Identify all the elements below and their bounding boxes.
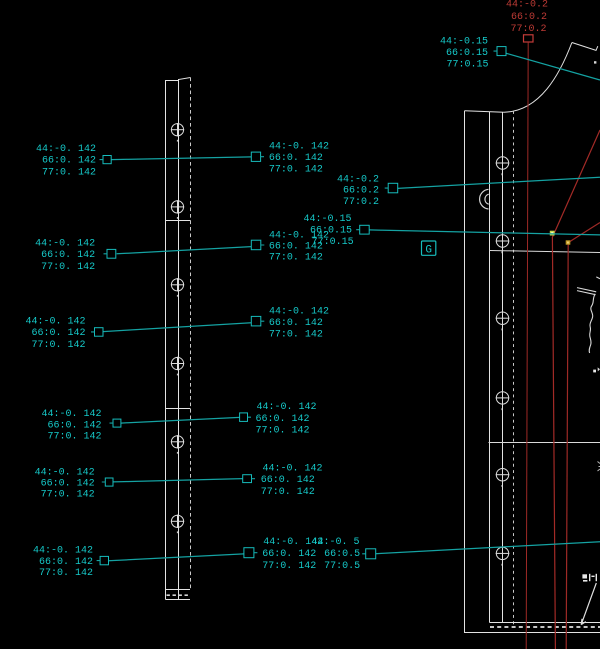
svg-text:77:0. 142: 77:0. 142 bbox=[269, 253, 323, 264]
svg-text:44:-0.15: 44:-0.15 bbox=[440, 36, 488, 47]
svg-text:66:0.15: 66:0.15 bbox=[310, 226, 352, 237]
svg-text:77:0. 142: 77:0. 142 bbox=[31, 340, 85, 351]
svg-text:44:-0. 142: 44:-0. 142 bbox=[257, 402, 317, 413]
svg-text:44:-0. 142: 44:-0. 142 bbox=[41, 409, 101, 420]
svg-text:77:0.2: 77:0.2 bbox=[343, 197, 379, 208]
svg-text:G: G bbox=[425, 245, 432, 257]
svg-text:77:0. 142: 77:0. 142 bbox=[262, 561, 316, 572]
svg-text:77:0. 142: 77:0. 142 bbox=[269, 164, 323, 175]
svg-text:77:0.15: 77:0.15 bbox=[446, 60, 488, 71]
svg-text:77:0. 142: 77:0. 142 bbox=[256, 426, 310, 437]
svg-text:66:0. 142: 66:0. 142 bbox=[269, 318, 323, 329]
svg-text:44:-0. 142: 44:-0. 142 bbox=[263, 463, 323, 474]
svg-text:77:0. 142: 77:0. 142 bbox=[47, 431, 101, 442]
svg-text:77:0.15: 77:0.15 bbox=[312, 237, 354, 248]
svg-text:44:-0. 142: 44:-0. 142 bbox=[36, 144, 96, 155]
svg-text:44:-0.15: 44:-0.15 bbox=[303, 214, 351, 225]
svg-text:77:0. 142: 77:0. 142 bbox=[42, 167, 96, 178]
svg-text:66:0. 142: 66:0. 142 bbox=[41, 250, 95, 261]
svg-text:66:0. 142: 66:0. 142 bbox=[41, 478, 95, 489]
svg-text:66:0. 142: 66:0. 142 bbox=[39, 557, 93, 568]
svg-text:77:0. 142: 77:0. 142 bbox=[269, 329, 323, 340]
svg-text:77:0. 142: 77:0. 142 bbox=[41, 262, 95, 273]
svg-text:77:0.2: 77:0.2 bbox=[510, 24, 546, 35]
svg-text:44:-0. 142: 44:-0. 142 bbox=[35, 238, 95, 249]
svg-text:44:-0. 142: 44:-0. 142 bbox=[33, 546, 93, 557]
svg-text:66:0.15: 66:0.15 bbox=[446, 48, 488, 59]
svg-text:77:0.5: 77:0.5 bbox=[324, 561, 360, 572]
svg-text:66:0.5: 66:0.5 bbox=[324, 549, 360, 560]
svg-text:66:0. 142: 66:0. 142 bbox=[256, 414, 310, 425]
svg-text:66:0.2: 66:0.2 bbox=[511, 12, 547, 23]
svg-text:66:0. 142: 66:0. 142 bbox=[261, 475, 315, 486]
svg-text:44:-0. 142: 44:-0. 142 bbox=[269, 142, 329, 153]
svg-text:66:0. 142: 66:0. 142 bbox=[31, 328, 85, 339]
svg-text:44:-0. 142: 44:-0. 142 bbox=[269, 307, 329, 318]
svg-text:66:0.2: 66:0.2 bbox=[343, 186, 379, 197]
svg-text:44:-0. 5: 44:-0. 5 bbox=[311, 537, 359, 548]
svg-text:44:-0. 142: 44:-0. 142 bbox=[35, 467, 95, 478]
svg-text:77:0. 142: 77:0. 142 bbox=[41, 489, 95, 500]
svg-text:66:0. 142: 66:0. 142 bbox=[269, 153, 323, 164]
svg-text:44:-0.2: 44:-0.2 bbox=[337, 174, 379, 185]
svg-text:77:0. 142: 77:0. 142 bbox=[261, 487, 315, 498]
svg-text:44:-0.2: 44:-0.2 bbox=[506, 0, 548, 11]
svg-text:66:0. 142: 66:0. 142 bbox=[262, 549, 316, 560]
svg-text:44:-0. 142: 44:-0. 142 bbox=[25, 316, 85, 327]
svg-text:66:0. 142: 66:0. 142 bbox=[42, 156, 96, 167]
svg-text:77:0. 142: 77:0. 142 bbox=[39, 568, 93, 579]
svg-text:66:0. 142: 66:0. 142 bbox=[47, 420, 101, 431]
